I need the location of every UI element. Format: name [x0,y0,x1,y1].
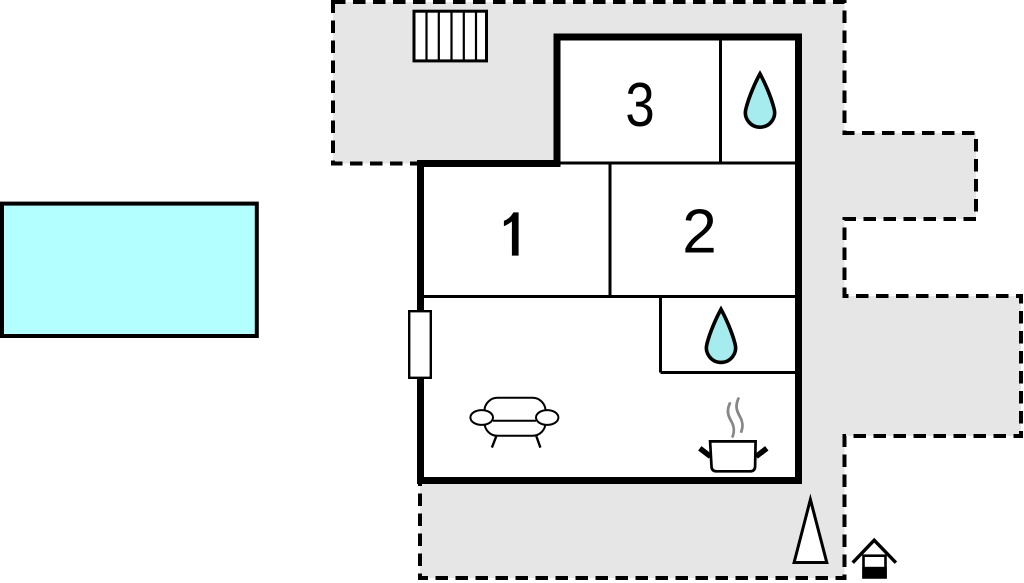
svg-text:2: 2 [682,197,716,266]
svg-text:3: 3 [625,71,654,140]
